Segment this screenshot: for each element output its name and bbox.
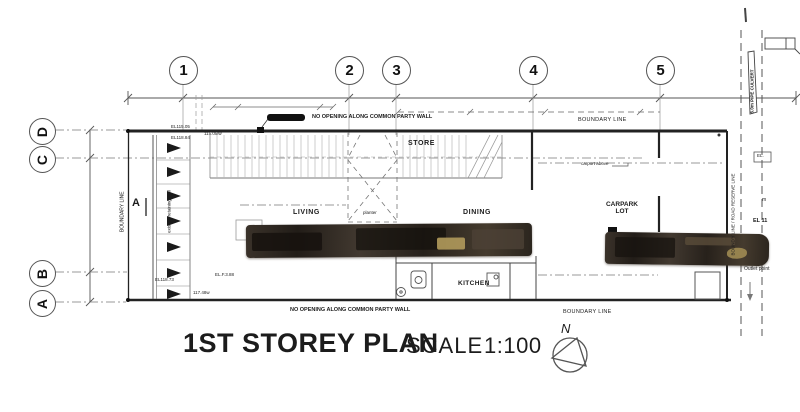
level-m: m (762, 198, 766, 204)
boundary-line-left: BOUNDARY LINE (120, 182, 126, 242)
carport-above-note: carport above (581, 162, 609, 167)
planter-label: planter (363, 211, 377, 216)
room-store: STORE (408, 140, 435, 148)
level-115-05: 115.05lw (204, 132, 222, 137)
scale-label: SCALE (406, 334, 483, 358)
room-kitchen: KITCHEN (458, 280, 490, 287)
grid-bubble-A: A (29, 290, 56, 317)
north-arrow (552, 338, 587, 372)
boundary-line-top: BOUNDARY LINE (578, 117, 627, 123)
redaction-bar-left (246, 223, 532, 258)
level-el115: EL115.05 (171, 125, 190, 130)
carpark-line1: CARPARK (606, 201, 638, 208)
drawing-title: 1ST STOREY PLAN (183, 329, 439, 359)
grid-bubble-2: 2 (335, 56, 364, 85)
grid-bubble-3: 3 (382, 56, 411, 85)
grid-bubble-B: B (29, 260, 56, 287)
outlet-arrow (747, 294, 753, 301)
grid-label-4: 4 (529, 62, 537, 79)
grid-label-A: A (35, 298, 51, 308)
road-reserve-note: BOUND'Y LINE / ROAD RESERVE LINE (732, 159, 737, 269)
no-opening-top: NO OPENING ALONG COMMON PARTY WALL (312, 114, 432, 120)
grid-label-1: 1 (179, 62, 187, 79)
grid-label-3: 3 (392, 62, 400, 79)
level-el118-73: EL118.73 (155, 278, 174, 283)
floor-plan-drawing: 1 2 3 4 5 D C B A BOUNDARY LINE NO OPENI… (0, 0, 800, 412)
left-dimension-line (86, 126, 94, 306)
level-el118-84: EL118.84 (171, 136, 190, 141)
no-opening-bottom: NO OPENING ALONG COMMON PARTY WALL (290, 307, 410, 313)
grid-bubble-5: 5 (646, 56, 675, 85)
level-el11: EL 11 (753, 218, 767, 224)
room-dining: DINING (463, 209, 491, 217)
top-dimension-line (124, 91, 800, 105)
redacted-note (267, 114, 305, 121)
scale-value: 1:100 (484, 334, 542, 358)
grid-bubble-1: 1 (169, 56, 198, 85)
grid-stems (183, 84, 660, 135)
level-el-box: EL. (757, 154, 764, 159)
grid-label-5: 5 (656, 62, 664, 79)
boundary-line-bottom: BOUNDARY LINE (563, 309, 612, 315)
grid-label-D: D (35, 126, 51, 136)
carpark-line2: LOT (616, 208, 629, 215)
retaining-wall-note: existing retaining wall (168, 171, 173, 251)
grid-bubble-4: 4 (519, 56, 548, 85)
grid-label-B: B (35, 268, 51, 278)
level-117-48: 117.48w (193, 291, 210, 296)
redaction-bar-right (605, 232, 769, 266)
room-living: LIVING (293, 209, 320, 217)
grid-label-C: C (35, 154, 51, 164)
outlet-point-note: Outlet point (744, 266, 774, 272)
level-elf: EL.F.3.88 (215, 273, 234, 278)
pipe-culvert-note: 6.0m PIPE CULVERT (751, 56, 756, 126)
redaction-light-patch (437, 237, 465, 249)
culvert-symbol (765, 38, 795, 49)
north-label: N (561, 322, 570, 336)
stair-void-dashes (348, 132, 397, 222)
grid-bubble-D: D (29, 118, 56, 145)
grid-label-2: 2 (345, 62, 353, 79)
section-a-label: A (132, 197, 140, 209)
stair-hatch-band (210, 135, 502, 178)
room-carpark: CARPARK LOT (600, 201, 644, 215)
grid-bubble-C: C (29, 146, 56, 173)
